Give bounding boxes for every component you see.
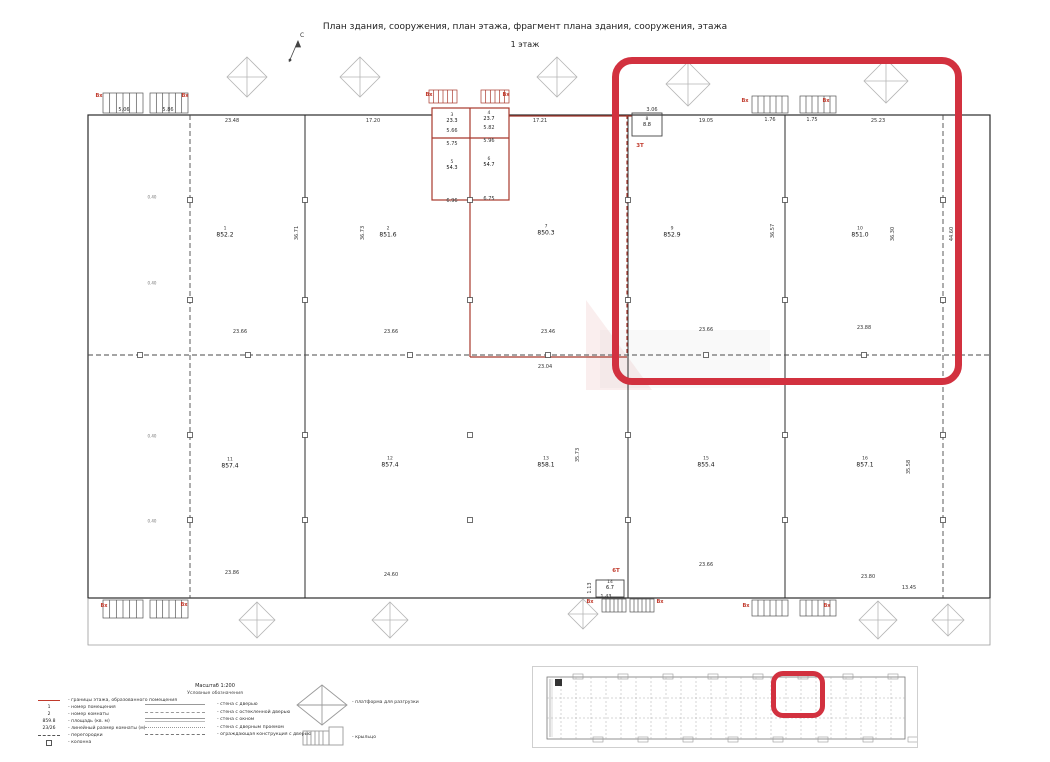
size-symbol: 23/26 xyxy=(34,726,64,731)
legend-label: - номер комнаты xyxy=(64,712,109,717)
legend-label: - стена с остекленной дверью xyxy=(213,710,290,715)
dimension-label: 0.40 xyxy=(148,195,157,200)
dimension-label: 5.75 xyxy=(446,141,457,147)
minimap-highlight xyxy=(771,671,825,718)
dimension-label: 5.96 xyxy=(483,138,494,144)
room-label: 7850.3 xyxy=(537,225,554,236)
legend-label: - перегородки xyxy=(64,733,103,738)
entrance-label: Вх xyxy=(95,93,102,99)
dimension-label: 5.86 xyxy=(162,107,173,113)
minimap-drawing xyxy=(533,667,917,747)
wall-door-symbol xyxy=(145,704,205,705)
wall-window-symbol xyxy=(145,718,205,722)
tech-room-label: 6Т xyxy=(612,568,620,574)
flat-number-symbol: 2 xyxy=(34,712,64,717)
room-label: 423.7 xyxy=(483,112,494,122)
room-label: 2851.6 xyxy=(379,227,396,238)
entrance-label: Вх xyxy=(656,599,663,605)
dimension-label: 13.45 xyxy=(902,585,916,591)
dimension-label: 6.96 xyxy=(446,198,457,204)
entrance-label: Вх xyxy=(742,603,749,609)
fragment-highlight xyxy=(612,57,962,385)
dimension-label: 5.06 xyxy=(118,107,129,113)
wall-glazed-door-symbol xyxy=(145,712,205,713)
room-label: 16857.1 xyxy=(856,457,873,468)
platform-label: - платформа для разгрузки xyxy=(352,700,419,705)
entrance-label: Вх xyxy=(823,603,830,609)
dimension-label: 17.21 xyxy=(533,118,547,124)
legend-title: Условные обозначения xyxy=(150,691,280,696)
legend-row: - стена с дверью xyxy=(145,701,311,709)
dimension-label: 23.80 xyxy=(861,574,875,580)
entrance-label: Вх xyxy=(425,92,432,98)
legend-row: - ограждающая конструкция с дверью xyxy=(145,731,311,739)
room-label: 12857.4 xyxy=(381,457,398,468)
legend-row: - колонна xyxy=(34,739,177,746)
dimension-label: 5.66 xyxy=(446,128,457,134)
legend-row: - стена с остекленной дверью xyxy=(145,709,311,717)
room-label: 146.7 xyxy=(606,581,614,591)
dimension-label: 36.73 xyxy=(360,226,366,240)
dimension-label: 6.75 xyxy=(483,196,494,202)
legend-label: - площадь (кв. м) xyxy=(64,719,110,724)
dimension-label: 23.66 xyxy=(233,329,247,335)
legend-scale-block: Масштаб 1:200 Условные обозначения xyxy=(150,683,280,696)
legend-label: - колонна xyxy=(64,740,91,745)
room-label: 554.3 xyxy=(446,161,457,171)
room-label: 323.3 xyxy=(446,114,457,124)
entrance-label: Вх xyxy=(181,93,188,99)
dimension-label: 23.66 xyxy=(384,329,398,335)
room-label: 15855.4 xyxy=(697,457,714,468)
dimension-label: 23.48 xyxy=(225,118,239,124)
dimension-label: 17.20 xyxy=(366,118,380,124)
legend-icons xyxy=(295,683,350,753)
room-label: 1852.2 xyxy=(216,227,233,238)
dimension-label: 35.73 xyxy=(575,448,581,462)
dimension-label: 1.13 xyxy=(587,582,593,593)
dimension-label: 1.43 xyxy=(600,594,611,600)
dimension-label: 0.40 xyxy=(148,434,157,439)
dimension-label: 23.04 xyxy=(538,364,552,370)
dimension-label: 23.66 xyxy=(699,562,713,568)
legend-label: - стена с дверным проемом xyxy=(213,725,284,730)
room-label: 13858.1 xyxy=(537,457,554,468)
dimension-label: 35.58 xyxy=(906,460,912,474)
wall-opening-symbol xyxy=(145,727,205,728)
platform-icon xyxy=(297,685,347,725)
legend-label: - номер помещения xyxy=(64,705,116,710)
legend-label: - линейный размер комнаты (м) xyxy=(64,726,145,731)
legend-row: - стена с окном xyxy=(145,716,311,724)
legend-label: - стена с окном xyxy=(213,717,254,722)
column-symbol xyxy=(46,740,52,746)
room-label: 654.7 xyxy=(483,158,494,168)
legend-walls: - стена с дверью - стена с остекленной д… xyxy=(145,701,311,739)
legend-label: - стена с дверью xyxy=(213,702,258,707)
red-line-symbol xyxy=(38,700,60,701)
partition-symbol xyxy=(38,735,60,736)
entrance-label: Вх xyxy=(586,599,593,605)
enclosure-door-symbol xyxy=(145,734,205,735)
area-symbol: 859.8 xyxy=(34,719,64,724)
room-number-symbol: 1 xyxy=(34,705,64,710)
dimension-label: 5.82 xyxy=(483,125,494,131)
entrance-label: Вх xyxy=(502,92,509,98)
minimap xyxy=(532,666,918,748)
porch-icon xyxy=(303,727,343,745)
scale-label: Масштаб 1:200 xyxy=(150,683,280,689)
legend-row: - стена с дверным проемом xyxy=(145,724,311,732)
dimension-label: 0.40 xyxy=(148,519,157,524)
dimension-label: 0.40 xyxy=(148,281,157,286)
dimension-label: 36.71 xyxy=(294,226,300,240)
room-label: 11857.4 xyxy=(221,458,238,469)
dimension-label: 23.86 xyxy=(225,570,239,576)
entrance-label: Вх xyxy=(100,603,107,609)
porch-label: - крыльцо xyxy=(352,735,376,740)
dimension-label: 24.60 xyxy=(384,572,398,578)
entrance-label: Вх xyxy=(180,602,187,608)
dimension-label: 23.46 xyxy=(541,329,555,335)
